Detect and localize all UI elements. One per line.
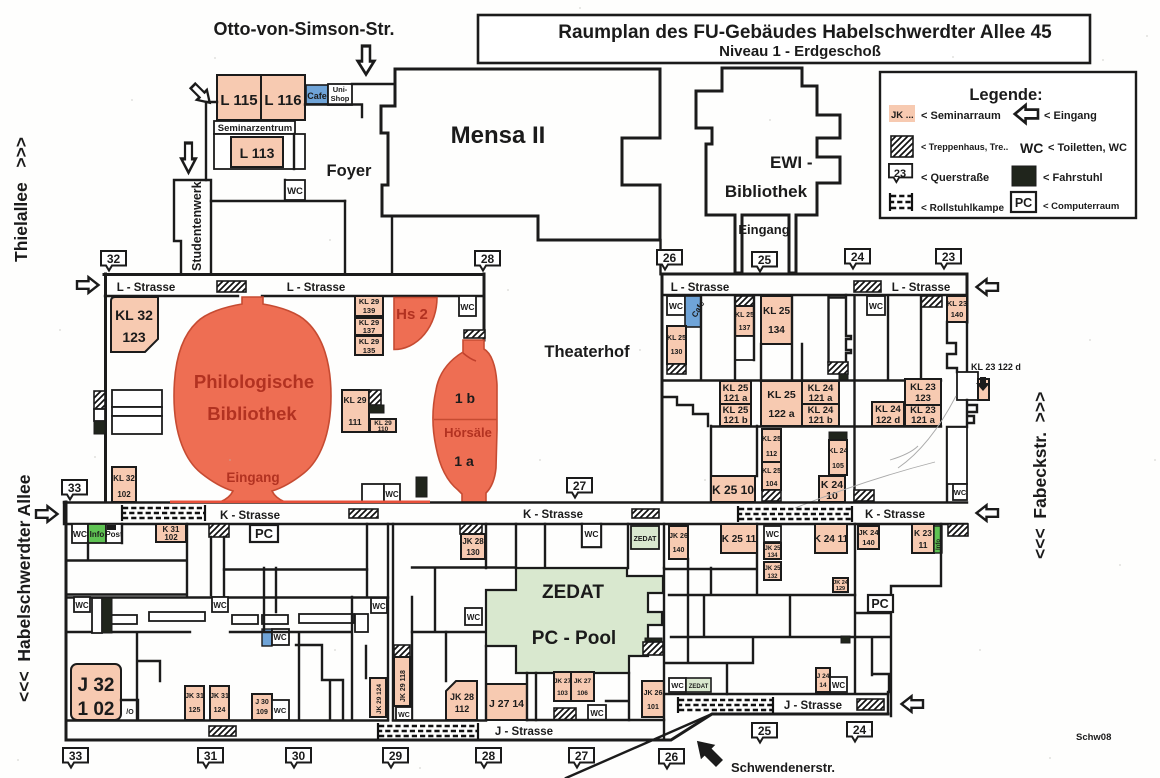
- svg-text:1 a: 1 a: [454, 453, 474, 469]
- svg-text:101: 101: [647, 704, 659, 711]
- svg-text:121 a: 121 a: [809, 393, 833, 404]
- svg-text:25: 25: [758, 253, 772, 267]
- svg-text:KL 25: KL 25: [763, 306, 790, 317]
- svg-text:< Fahrstuhl: < Fahrstuhl: [1043, 172, 1103, 184]
- svg-text:122 a: 122 a: [768, 408, 794, 420]
- svg-text:KL 25: KL 25: [762, 436, 781, 443]
- svg-text:J 24: J 24: [817, 673, 830, 680]
- svg-text:K - Strasse: K - Strasse: [523, 509, 583, 521]
- svg-text:JK 31: JK 31: [210, 693, 229, 700]
- svg-text:Raumplan des FU-Gebäudes Habel: Raumplan des FU-Gebäudes Habelschwerdter…: [558, 22, 1052, 43]
- svg-text:Niveau 1 - Erdgeschoß: Niveau 1 - Erdgeschoß: [719, 43, 881, 60]
- svg-text:JK 24: JK 24: [858, 528, 879, 537]
- svg-text:WC: WC: [954, 488, 967, 497]
- svg-text:WC: WC: [671, 681, 684, 690]
- svg-text:112: 112: [455, 704, 470, 714]
- svg-text:JK 26: JK 26: [644, 690, 663, 697]
- svg-text:130: 130: [671, 349, 683, 356]
- svg-text:137: 137: [363, 326, 376, 335]
- svg-text:Hs 2: Hs 2: [396, 306, 428, 323]
- svg-text:102: 102: [117, 490, 131, 499]
- svg-text:<<< Fabeckstr. >>>: <<< Fabeckstr. >>>: [1030, 392, 1050, 559]
- svg-text:109: 109: [256, 709, 268, 716]
- svg-text:KL 23 122 d: KL 23 122 d: [971, 362, 1021, 372]
- svg-text:110: 110: [378, 426, 389, 433]
- svg-text:JK 27: JK 27: [554, 678, 572, 685]
- svg-text:ZEDAT: ZEDAT: [689, 684, 709, 690]
- svg-text:L - Strasse: L - Strasse: [287, 282, 346, 294]
- svg-text:Shop: Shop: [331, 94, 350, 103]
- svg-text:140: 140: [951, 310, 964, 319]
- svg-text:23: 23: [894, 168, 906, 180]
- svg-text:EWI -: EWI -: [770, 153, 813, 172]
- svg-text:WC: WC: [1020, 140, 1043, 156]
- svg-text:K 25 10: K 25 10: [712, 483, 754, 497]
- svg-text:33: 33: [69, 749, 83, 763]
- svg-text:L - Strasse: L - Strasse: [892, 282, 951, 294]
- svg-text:30: 30: [292, 749, 306, 763]
- svg-text:JK 29 118: JK 29 118: [400, 670, 407, 702]
- svg-text:J - Strasse: J - Strasse: [784, 700, 842, 712]
- svg-text:Mensa II: Mensa II: [451, 122, 546, 149]
- svg-text:122 d: 122 d: [876, 415, 900, 426]
- svg-text:130: 130: [466, 548, 480, 557]
- svg-text:135: 135: [363, 346, 376, 355]
- svg-text:WC: WC: [398, 712, 410, 719]
- svg-text:139: 139: [363, 306, 376, 315]
- svg-text:J - Strasse: J - Strasse: [495, 726, 553, 738]
- svg-text:31: 31: [204, 749, 218, 763]
- svg-text:10: 10: [826, 490, 838, 502]
- svg-text:K - Strasse: K - Strasse: [220, 510, 280, 522]
- svg-text:KL 24: KL 24: [829, 448, 848, 455]
- svg-text:28: 28: [481, 252, 495, 266]
- svg-text:Eingang: Eingang: [738, 222, 789, 237]
- svg-text:WC: WC: [385, 490, 399, 499]
- svg-text:14: 14: [819, 682, 827, 689]
- svg-text:KL 29: KL 29: [359, 297, 379, 306]
- svg-text:JK 26: JK 26: [669, 533, 688, 540]
- svg-text:140: 140: [862, 538, 875, 547]
- svg-text:Foyer: Foyer: [327, 162, 373, 180]
- svg-text:KL 32: KL 32: [115, 307, 153, 323]
- svg-text:K - Strasse: K - Strasse: [865, 509, 925, 521]
- svg-text:JK 27: JK 27: [574, 678, 592, 685]
- svg-text:11: 11: [919, 540, 928, 550]
- svg-text:29: 29: [389, 749, 403, 763]
- svg-text:PC - Pool: PC - Pool: [532, 628, 616, 649]
- svg-text:KL 29: KL 29: [344, 395, 367, 405]
- svg-text:WC: WC: [213, 601, 227, 610]
- svg-text:132: 132: [767, 574, 778, 580]
- svg-text:WC: WC: [467, 613, 481, 622]
- svg-text:137: 137: [739, 325, 751, 332]
- svg-text:Theaterhof: Theaterhof: [544, 343, 630, 361]
- svg-text:< Querstraße: < Querstraße: [921, 172, 989, 184]
- svg-text:23: 23: [942, 250, 956, 264]
- svg-text:L - Strasse: L - Strasse: [671, 282, 730, 294]
- svg-text:Bibliothek: Bibliothek: [207, 403, 297, 424]
- svg-text:JK 28: JK 28: [462, 537, 484, 546]
- svg-text:Legende:: Legende:: [969, 86, 1042, 104]
- svg-text:K 23: K 23: [914, 528, 932, 538]
- svg-text:25: 25: [758, 724, 772, 738]
- svg-text:Info: Info: [90, 530, 105, 539]
- svg-text:K 25 11: K 25 11: [722, 534, 757, 545]
- svg-text:L - Strasse: L - Strasse: [117, 282, 176, 294]
- svg-text:KL 23: KL 23: [947, 299, 967, 308]
- svg-text:104: 104: [766, 481, 778, 488]
- svg-text:121 b: 121 b: [808, 415, 832, 426]
- svg-text:WC: WC: [460, 302, 474, 312]
- svg-text:112: 112: [766, 451, 777, 458]
- svg-text:134: 134: [767, 553, 778, 559]
- svg-text:L 113: L 113: [240, 145, 275, 161]
- svg-text:KL 25: KL 25: [767, 389, 796, 401]
- svg-text:< Seminarraum: < Seminarraum: [921, 110, 1001, 122]
- svg-text:JK 29 124: JK 29 124: [376, 684, 383, 714]
- svg-text:Schw08: Schw08: [1076, 732, 1111, 743]
- svg-text:KL 24: KL 24: [875, 404, 901, 415]
- svg-text:/O: /O: [126, 709, 134, 716]
- svg-text:KL 25: KL 25: [735, 312, 754, 319]
- svg-text:ZEDAT: ZEDAT: [542, 582, 604, 603]
- svg-text:PC: PC: [1015, 196, 1032, 210]
- svg-text:K 24 11: K 24 11: [814, 534, 849, 545]
- svg-text:1 02: 1 02: [78, 699, 115, 720]
- svg-text:134: 134: [768, 325, 785, 336]
- svg-text:<<< Habelschwerdter Allee: <<< Habelschwerdter Allee: [14, 474, 34, 702]
- svg-text:KL 23: KL 23: [910, 382, 936, 393]
- svg-text:< Toiletten, WC: < Toiletten, WC: [1048, 142, 1127, 154]
- svg-text:24: 24: [853, 723, 867, 737]
- svg-text:125: 125: [189, 707, 201, 714]
- svg-text:26: 26: [663, 251, 677, 265]
- svg-text:J 30: J 30: [255, 699, 269, 706]
- svg-text:WC: WC: [766, 530, 780, 539]
- svg-text:Schwendenerstr.: Schwendenerstr.: [731, 760, 835, 775]
- svg-text:28: 28: [482, 749, 496, 763]
- svg-text:KL 25: KL 25: [667, 335, 686, 342]
- svg-text:Hörsäle: Hörsäle: [444, 425, 492, 440]
- svg-text:Philologische: Philologische: [194, 371, 314, 392]
- svg-text:< Eingang: < Eingang: [1044, 110, 1097, 122]
- svg-text:JK ...: JK ...: [891, 110, 914, 121]
- svg-text:103: 103: [557, 690, 568, 697]
- svg-text:WC: WC: [274, 706, 287, 715]
- svg-text:KL 29: KL 29: [359, 337, 379, 346]
- svg-text:106: 106: [577, 690, 588, 697]
- svg-text:27: 27: [575, 749, 589, 763]
- svg-text:L 116: L 116: [264, 92, 301, 109]
- svg-text:JK 25: JK 25: [764, 566, 781, 572]
- svg-text:WC: WC: [372, 602, 386, 611]
- svg-text:24: 24: [851, 250, 865, 264]
- svg-text:< Rollstuhlkampe: < Rollstuhlkampe: [921, 203, 1005, 214]
- svg-text:WC: WC: [584, 529, 598, 539]
- svg-text:Cafe: Cafe: [307, 91, 327, 101]
- svg-text:111: 111: [348, 417, 362, 427]
- svg-text:J 32: J 32: [78, 675, 115, 696]
- svg-text:Studentenwerk: Studentenwerk: [190, 181, 204, 271]
- svg-text:WC: WC: [590, 709, 604, 718]
- svg-text:129: 129: [836, 586, 845, 592]
- svg-text:Otto-von-Simson-Str.: Otto-von-Simson-Str.: [214, 19, 395, 39]
- svg-text:123: 123: [122, 329, 146, 345]
- svg-text:121 b: 121 b: [723, 415, 747, 426]
- svg-text:JK 28: JK 28: [450, 692, 474, 702]
- svg-text:WC: WC: [75, 601, 89, 610]
- svg-text:140: 140: [673, 547, 685, 554]
- svg-text:WC: WC: [287, 186, 303, 197]
- svg-text:123: 123: [915, 393, 931, 404]
- svg-text:< Treppenhaus, Tre..: < Treppenhaus, Tre..: [921, 142, 1008, 152]
- svg-text:32: 32: [107, 252, 121, 266]
- svg-text:< Computerraum: < Computerraum: [1043, 201, 1119, 212]
- svg-text:WC: WC: [273, 633, 287, 642]
- svg-text:Post: Post: [105, 530, 123, 539]
- svg-text:1 b: 1 b: [455, 390, 475, 406]
- svg-text:L 115: L 115: [220, 92, 257, 109]
- svg-text:Bibliothek: Bibliothek: [725, 182, 808, 201]
- svg-text:124: 124: [214, 707, 226, 714]
- svg-text:JK 25: JK 25: [764, 546, 781, 552]
- svg-text:121 a: 121 a: [724, 393, 748, 404]
- svg-text:PC: PC: [871, 597, 888, 611]
- svg-text:33: 33: [68, 481, 82, 495]
- svg-text:WC: WC: [73, 529, 87, 539]
- svg-text:121 a: 121 a: [911, 415, 935, 426]
- svg-text:ZEDAT: ZEDAT: [634, 536, 658, 543]
- svg-text:WC: WC: [669, 301, 683, 311]
- svg-text:J 27 14: J 27 14: [489, 698, 524, 710]
- svg-text:KL 32: KL 32: [113, 474, 135, 483]
- svg-text:JK 31: JK 31: [185, 693, 204, 700]
- svg-text:26: 26: [665, 750, 679, 764]
- svg-text:27: 27: [573, 479, 587, 493]
- svg-text:105: 105: [832, 463, 844, 470]
- svg-text:102: 102: [164, 533, 178, 542]
- svg-text:Eingang: Eingang: [226, 470, 279, 485]
- svg-text:WC: WC: [832, 681, 846, 690]
- svg-text:WC: WC: [869, 301, 883, 311]
- svg-text:PC: PC: [255, 526, 274, 541]
- svg-text:Uni-: Uni-: [333, 85, 348, 94]
- svg-text:KL 25: KL 25: [762, 468, 781, 475]
- svg-text:Seminarzentrum: Seminarzentrum: [218, 123, 292, 134]
- svg-text:Thielallee >>>: Thielallee >>>: [11, 137, 31, 262]
